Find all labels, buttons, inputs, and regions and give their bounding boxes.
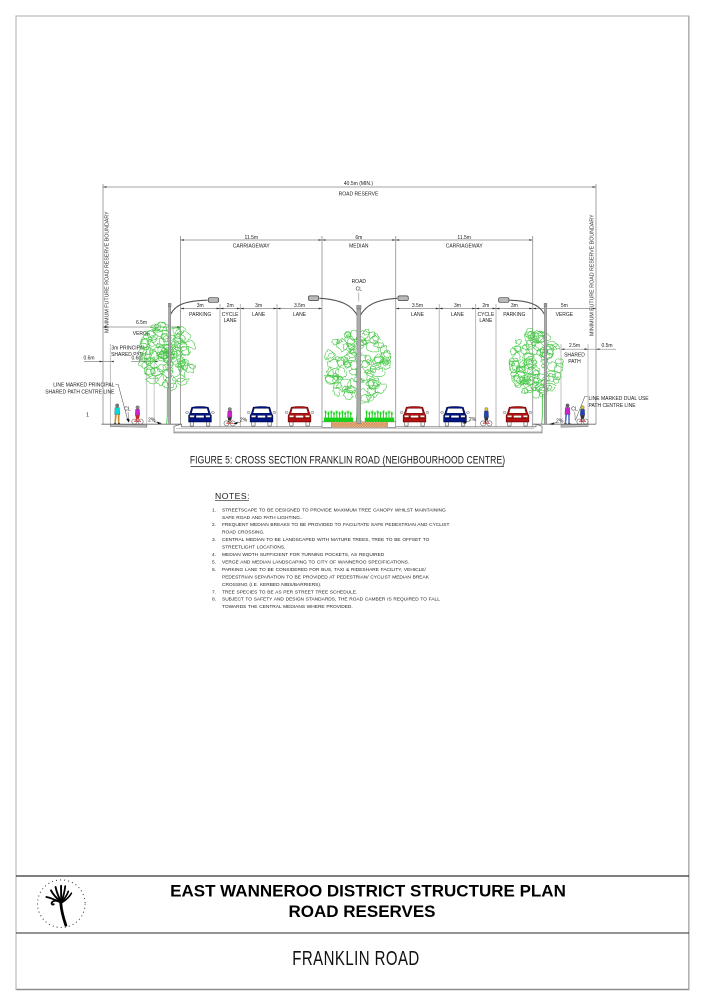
svg-text:LINE MARKED DUAL USE: LINE MARKED DUAL USE: [589, 396, 650, 402]
svg-text:2m: 2m: [227, 303, 234, 309]
svg-text:11.5m: 11.5m: [244, 235, 258, 241]
svg-text:2.5m: 2.5m: [569, 343, 580, 349]
svg-text:3m: 3m: [511, 303, 518, 309]
svg-text:FREQUENT MEDIAN BREAKS TO BE P: FREQUENT MEDIAN BREAKS TO BE PROVIDED TO…: [222, 522, 449, 528]
svg-text:CYCLE: CYCLE: [478, 312, 495, 318]
svg-text:CROSSING (I.E. KERBED NIBS/BAR: CROSSING (I.E. KERBED NIBS/BARRIERS).: [222, 582, 321, 588]
svg-text:1: 1: [86, 413, 89, 419]
svg-text:LANE: LANE: [293, 312, 307, 318]
svg-text:MEDIAN WIDTH SUFFICIENT FOR TU: MEDIAN WIDTH SUFFICIENT FOR TURNING POCK…: [222, 552, 385, 558]
svg-text:LANE: LANE: [411, 312, 425, 318]
svg-text:2%: 2%: [469, 417, 477, 423]
svg-text:SAFE ROAD AND PATH LIGHTING..: SAFE ROAD AND PATH LIGHTING..: [222, 515, 303, 521]
svg-text:SUBJECT TO SAFETY AND DESIGN S: SUBJECT TO SAFETY AND DESIGN STANDARDS, …: [222, 597, 440, 603]
svg-text:CL: CL: [571, 407, 578, 413]
svg-text:3.: 3.: [212, 537, 216, 543]
svg-text:3.5m: 3.5m: [294, 303, 305, 309]
svg-text:40.5m (MIN.): 40.5m (MIN.): [344, 181, 374, 187]
svg-text:CARRIAGEWAY: CARRIAGEWAY: [446, 243, 484, 249]
svg-text:2%: 2%: [240, 418, 248, 424]
svg-text:NOTES:: NOTES:: [215, 491, 250, 501]
svg-text:FIGURE 5: CROSS SECTION FRANKL: FIGURE 5: CROSS SECTION FRANKLIN ROAD (N…: [190, 455, 505, 467]
svg-text:3m PRINCIPAL: 3m PRINCIPAL: [111, 346, 146, 352]
svg-text:PARKING LANE TO BE CONSIDERED: PARKING LANE TO BE CONSIDERED FOR BUS, T…: [222, 567, 426, 573]
svg-text:ROAD CROSSING.: ROAD CROSSING.: [222, 530, 265, 536]
svg-text:PARKING: PARKING: [189, 312, 211, 318]
svg-text:MINIMUM FUTURE ROAD RESERVE BO: MINIMUM FUTURE ROAD RESERVE BOUNDARY: [105, 211, 111, 333]
svg-text:3.5m: 3.5m: [412, 303, 423, 309]
svg-text:EAST WANNEROO DISTRICT STRUCTU: EAST WANNEROO DISTRICT STRUCTURE PLAN: [170, 882, 566, 901]
svg-text:ROAD RESERVES: ROAD RESERVES: [288, 902, 435, 921]
svg-text:2.: 2.: [212, 522, 216, 528]
svg-text:PATH CENTRE LINE: PATH CENTRE LINE: [589, 403, 637, 409]
svg-text:2m: 2m: [482, 303, 489, 309]
svg-text:7.: 7.: [212, 589, 216, 595]
svg-text:CL: CL: [356, 287, 363, 293]
svg-text:5m: 5m: [561, 303, 568, 309]
svg-text:8.: 8.: [212, 597, 216, 603]
svg-text:6m: 6m: [355, 235, 362, 241]
svg-text:0.5m: 0.5m: [601, 343, 612, 349]
svg-text:ROAD RESERVE: ROAD RESERVE: [339, 192, 379, 198]
svg-text:11.5m: 11.5m: [457, 235, 471, 241]
svg-text:0.6m: 0.6m: [83, 356, 94, 362]
svg-text:6.5m: 6.5m: [136, 320, 147, 326]
svg-text:SHARED PATH CENTRE LINE: SHARED PATH CENTRE LINE: [45, 390, 115, 396]
svg-text:3m: 3m: [454, 303, 461, 309]
svg-text:PARKING: PARKING: [503, 312, 525, 318]
svg-text:LANE: LANE: [252, 312, 266, 318]
svg-text:CYCLE: CYCLE: [222, 312, 239, 318]
svg-text:CENTRAL MEDIAN TO BE LANDSCAPE: CENTRAL MEDIAN TO BE LANDSCAPED WITH MAT…: [222, 537, 430, 543]
svg-text:3m: 3m: [255, 303, 262, 309]
svg-text:2%: 2%: [148, 417, 156, 423]
svg-text:FRANKLIN ROAD: FRANKLIN ROAD: [292, 947, 419, 970]
svg-text:3m: 3m: [197, 303, 204, 309]
svg-text:TOWARDS THE CENTRAL MEDIANS WH: TOWARDS THE CENTRAL MEDIANS WHERE PROVID…: [222, 604, 353, 610]
svg-text:PATH: PATH: [568, 359, 581, 365]
svg-text:5.: 5.: [212, 560, 216, 566]
svg-text:4.: 4.: [212, 552, 216, 558]
svg-text:ROAD: ROAD: [352, 279, 367, 285]
svg-text:STREETSCAPE TO BE DESIGNED TO: STREETSCAPE TO BE DESIGNED TO PROVIDE MA…: [222, 507, 446, 513]
svg-text:LANE: LANE: [479, 318, 493, 324]
svg-text:STREETLIGHT LOCATIONS.: STREETLIGHT LOCATIONS.: [222, 545, 285, 551]
svg-text:VERGE: VERGE: [556, 312, 574, 318]
svg-text:2%: 2%: [556, 418, 564, 424]
svg-text:SHARED: SHARED: [564, 353, 585, 359]
svg-text:LANE: LANE: [224, 318, 238, 324]
svg-text:VERGE AND MEDIAN LANDSCAPING T: VERGE AND MEDIAN LANDSCAPING TO CITY OF …: [222, 560, 409, 566]
svg-text:LINE MARKED PRINCIPAL: LINE MARKED PRINCIPAL: [53, 383, 115, 389]
svg-text:MEDIAN: MEDIAN: [349, 243, 369, 249]
svg-text:0.6m: 0.6m: [131, 356, 142, 362]
svg-text:PEDESTRIAN SEPARATION TO BE PR: PEDESTRIAN SEPARATION TO BE PROVIDED AT …: [222, 574, 430, 580]
svg-text:1.: 1.: [212, 507, 216, 513]
svg-text:6.: 6.: [212, 567, 216, 573]
svg-text:MINIMUM FUTURE ROAD RESERVE BO: MINIMUM FUTURE ROAD RESERVE BOUNDARY: [590, 214, 596, 336]
svg-text:LANE: LANE: [451, 312, 465, 318]
svg-text:CARRIAGEWAY: CARRIAGEWAY: [233, 243, 271, 249]
svg-text:TREE SPECIES TO BE AS PER STRE: TREE SPECIES TO BE AS PER STREET TREE SC…: [222, 589, 357, 595]
